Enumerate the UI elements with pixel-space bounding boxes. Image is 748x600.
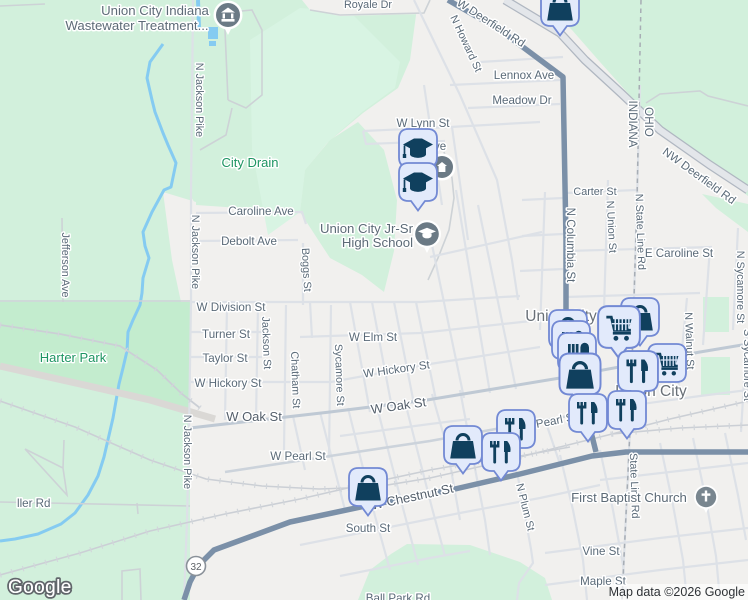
svg-text:N Sycamore St: N Sycamore St — [734, 251, 746, 324]
svg-text:W Division St: W Division St — [197, 301, 267, 314]
svg-text:Lennox Ave: Lennox Ave — [494, 69, 554, 82]
svg-text:Chatham St: Chatham St — [288, 351, 302, 408]
svg-text:INDIANA: INDIANA — [626, 100, 639, 147]
svg-text:Union City Indiana: Union City Indiana — [101, 3, 209, 18]
svg-text:Caroline Ave: Caroline Ave — [228, 205, 294, 218]
svg-text:W Oak St: W Oak St — [226, 409, 282, 424]
svg-text:Jackson St: Jackson St — [259, 316, 273, 369]
svg-text:Debolt Ave: Debolt Ave — [221, 235, 277, 248]
svg-text:Map data ©2026 Google: Map data ©2026 Google — [609, 585, 745, 599]
svg-text:Union City Jr-Sr: Union City Jr-Sr — [320, 221, 414, 236]
svg-text:Ball Park Rd: Ball Park Rd — [366, 592, 430, 600]
svg-text:Jefferson Ave: Jefferson Ave — [59, 232, 71, 297]
svg-text:32: 32 — [190, 562, 202, 573]
svg-text:E Caroline St: E Caroline St — [645, 247, 714, 260]
svg-text:State Line Rd: State Line Rd — [627, 453, 641, 519]
svg-text:Sycamore St: Sycamore St — [332, 344, 346, 406]
svg-text:OHIO: OHIO — [642, 107, 655, 137]
svg-text:W Elm St: W Elm St — [349, 331, 398, 344]
svg-text:Vine St: Vine St — [582, 545, 620, 558]
svg-text:Harter Park: Harter Park — [40, 350, 107, 365]
svg-text:Turner St: Turner St — [202, 328, 251, 341]
svg-text:Boggs St: Boggs St — [299, 248, 313, 292]
svg-text:N Jackson Pike: N Jackson Pike — [181, 415, 193, 489]
svg-text:N Jackson Pike: N Jackson Pike — [193, 63, 205, 137]
svg-text:Wastewater Treatment...: Wastewater Treatment... — [65, 18, 208, 33]
svg-text:Google: Google — [8, 577, 72, 598]
svg-text:Carter St: Carter St — [573, 186, 616, 198]
svg-text:First Baptist Church: First Baptist Church — [571, 490, 687, 505]
svg-text:W Hickory St: W Hickory St — [195, 377, 263, 390]
svg-text:South St: South St — [346, 522, 391, 535]
svg-text:S Sycamore St: S Sycamore St — [741, 329, 748, 401]
svg-text:W Lynn St: W Lynn St — [396, 117, 450, 130]
svg-text:N Columbia St: N Columbia St — [564, 208, 577, 284]
svg-text:W Pearl St: W Pearl St — [270, 450, 326, 463]
svg-text:Taylor St: Taylor St — [202, 352, 248, 365]
svg-text:N Jackson Pike: N Jackson Pike — [189, 215, 201, 289]
svg-text:High School: High School — [342, 235, 413, 250]
svg-text:City Drain: City Drain — [221, 155, 278, 170]
svg-text:Meadow Dr: Meadow Dr — [492, 94, 551, 107]
svg-text:ller Rd: ller Rd — [17, 497, 51, 510]
svg-text:Royale Dr: Royale Dr — [344, 0, 392, 11]
